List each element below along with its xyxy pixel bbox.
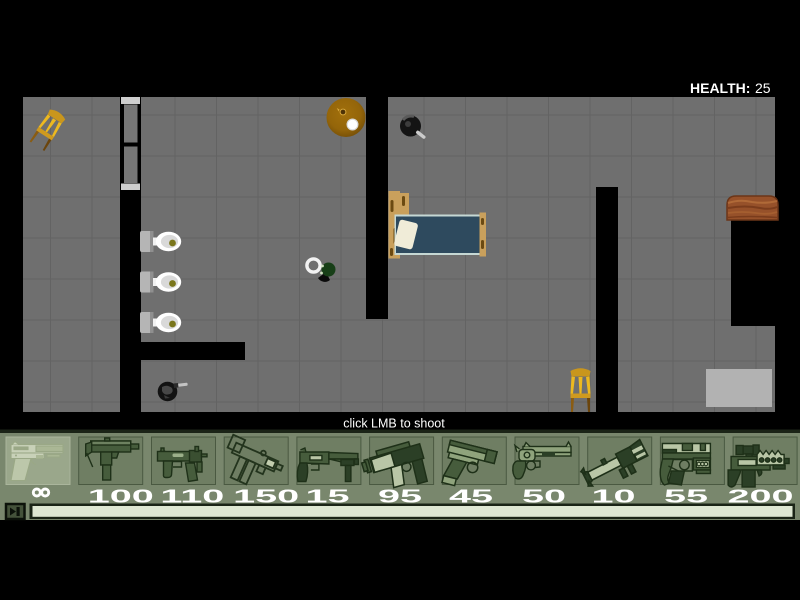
svg-text:HEALTH:: HEALTH: bbox=[690, 80, 750, 96]
svg-text:click LMB to shoot: click LMB to shoot bbox=[343, 417, 445, 431]
svg-text:25: 25 bbox=[755, 80, 771, 96]
